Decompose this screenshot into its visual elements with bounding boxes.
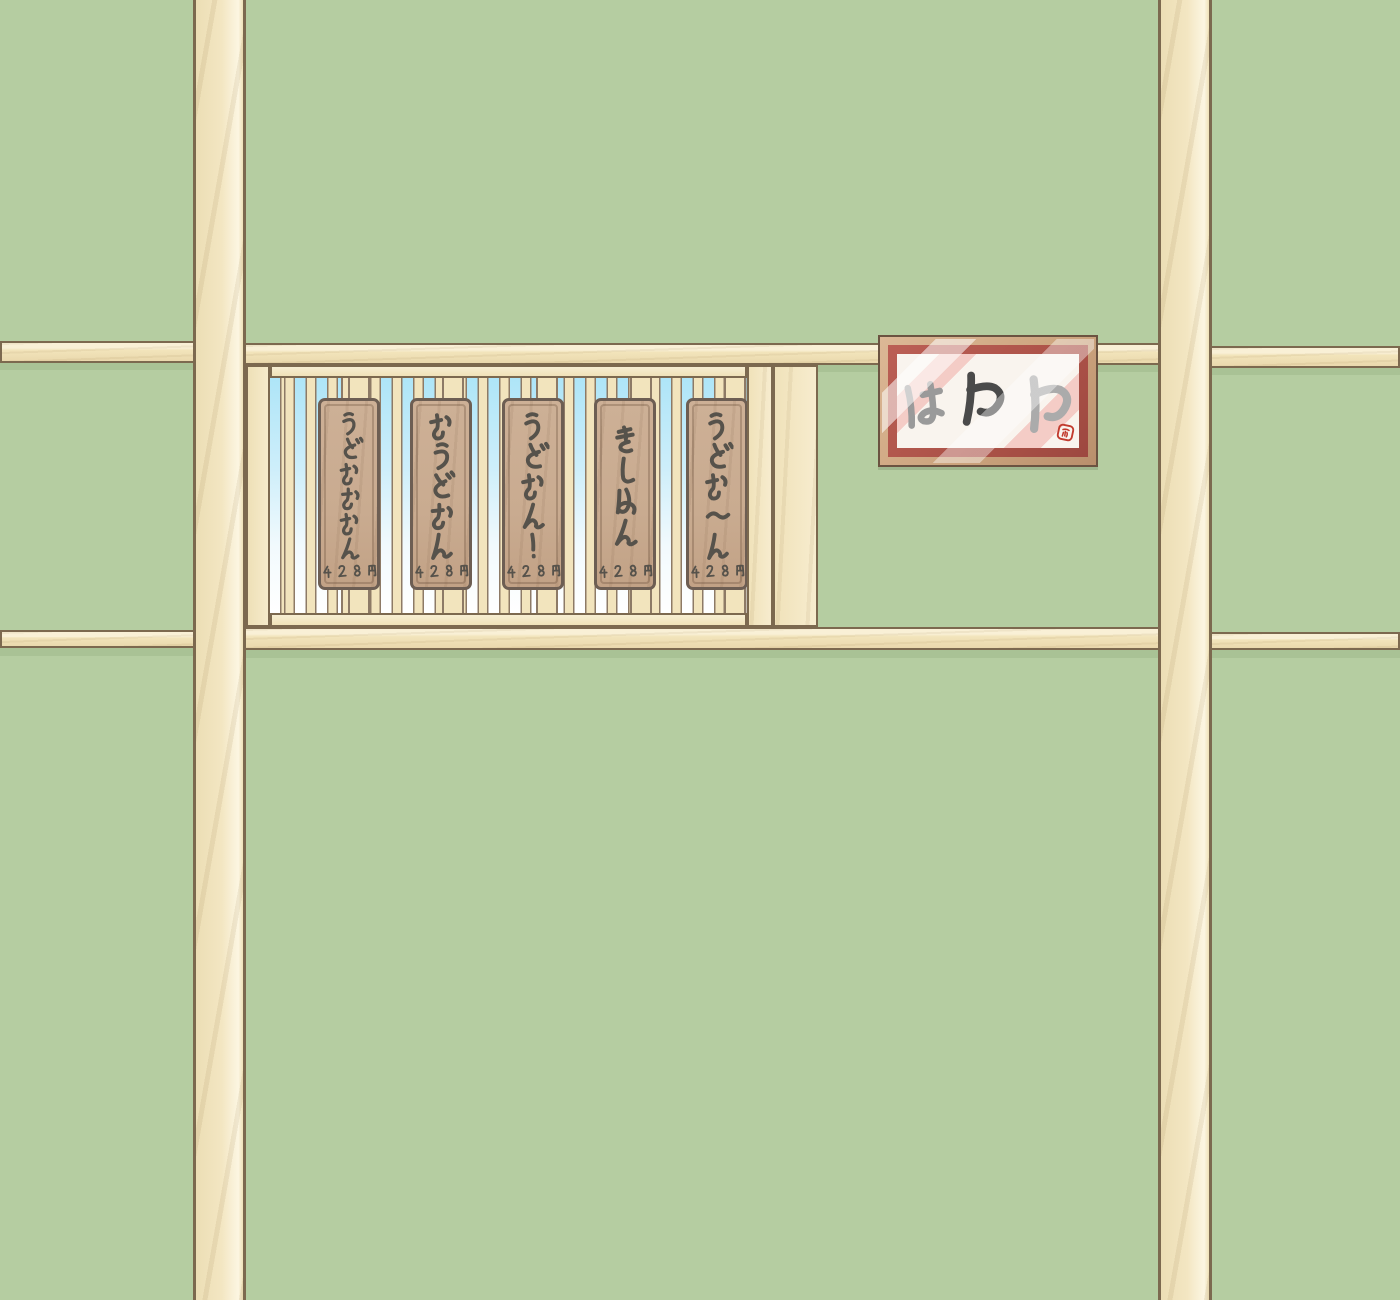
wall-post-right [1158,0,1212,1300]
hanging-sign [878,335,1098,467]
menu-plaque-3[interactable] [502,398,564,590]
menu-item-price [411,563,470,579]
beam-shadow [0,363,200,370]
window-top-rail [270,365,747,378]
lower-beam-left [0,630,200,648]
lower-beam-right [1210,632,1400,650]
menu-plaque-4[interactable] [594,398,656,590]
menu-item-price [687,563,746,579]
menu-item-name [426,401,456,564]
sign-paper [897,354,1079,448]
menu-item-name [702,401,732,564]
hanko-seal-glyph [1055,422,1075,442]
menu-item-price [503,563,562,579]
upper-beam-right [1210,346,1400,368]
beam-shadow [244,650,1160,658]
menu-window [246,365,818,627]
menu-plaque-2[interactable] [410,398,472,590]
menu-item-name [610,401,641,564]
hanko-seal-icon [1055,422,1075,442]
sign-calligraphy [897,354,1079,448]
menu-item-price [595,563,654,579]
menu-plaque-1[interactable] [318,398,380,590]
menu-item-name [337,401,362,564]
beam-shadow [0,648,200,656]
window-bottom-rail [270,613,747,627]
beam-shadow [1210,368,1400,375]
menu-plaque-5[interactable] [686,398,748,590]
menu-item-price [319,563,378,579]
udon-shop-wall-scene [0,0,1400,1300]
beam-shadow [1210,650,1400,658]
wall-post-left [193,0,246,1300]
upper-beam-left [0,341,200,363]
window-slat-zone [270,365,747,627]
lower-beam-middle [244,627,1160,650]
window-side-board [747,365,773,627]
sign-mat [888,345,1088,457]
menu-item-name [518,401,548,564]
window-side-board [773,365,818,627]
window-left-stile [246,365,270,627]
